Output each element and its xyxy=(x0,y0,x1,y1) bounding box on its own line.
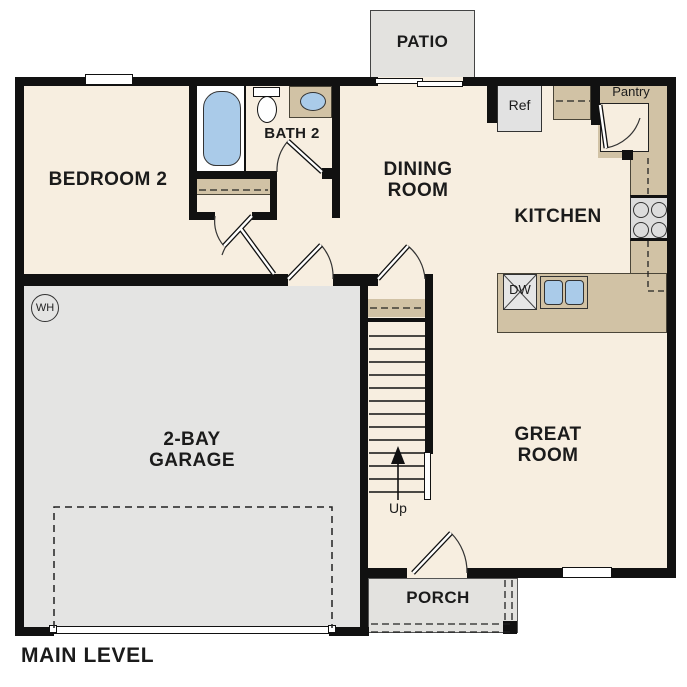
bath-sink-fixture xyxy=(300,92,326,111)
burner-icon xyxy=(633,202,649,218)
sliding-patio-door xyxy=(375,78,423,84)
stair-break-line xyxy=(368,318,425,322)
label-dw: DW xyxy=(503,283,537,298)
water-heater-symbol: WH xyxy=(31,294,59,322)
label-dining-room: DININGROOM xyxy=(370,159,466,202)
sink-basin xyxy=(565,280,584,305)
wall xyxy=(368,568,407,578)
wall xyxy=(189,77,197,218)
burner-icon xyxy=(651,202,667,218)
wall xyxy=(252,212,277,220)
wall xyxy=(333,274,378,286)
wall xyxy=(622,150,633,160)
floor-plan: WH PATIO BEDROOM 2 BATH 2 xyxy=(0,0,687,687)
wall xyxy=(189,212,215,220)
wall xyxy=(322,168,333,179)
page-title: MAIN LEVEL xyxy=(21,644,221,668)
wall xyxy=(591,83,600,125)
stair-handrail xyxy=(424,452,431,500)
label-ref: Ref xyxy=(497,98,542,114)
burner-icon xyxy=(651,222,667,238)
label-bath2: BATH 2 xyxy=(252,126,332,143)
wall xyxy=(332,77,340,218)
sink-basin xyxy=(544,280,563,305)
burner-icon xyxy=(633,222,649,238)
wall xyxy=(667,77,676,578)
stair-upper-shelf xyxy=(368,299,425,317)
bathtub-fixture xyxy=(203,91,241,166)
garage-door-post xyxy=(49,625,57,633)
label-porch: PORCH xyxy=(393,588,483,607)
wall xyxy=(612,568,676,578)
wall xyxy=(467,568,563,578)
closet-shelf xyxy=(196,179,270,195)
garage-door-post xyxy=(328,625,336,633)
wall xyxy=(15,77,24,636)
toilet-bowl xyxy=(257,96,277,123)
wall xyxy=(15,274,288,286)
label-pantry: Pantry xyxy=(602,85,660,100)
wall xyxy=(425,274,433,454)
wall xyxy=(189,171,277,179)
wall xyxy=(360,274,368,636)
label-patio: PATIO xyxy=(370,32,475,51)
garage-overhead-door xyxy=(53,626,330,634)
water-heater-label: WH xyxy=(36,302,54,314)
porch-post xyxy=(503,621,517,634)
label-kitchen: KITCHEN xyxy=(495,206,621,227)
label-great-room: GREATROOM xyxy=(500,424,596,467)
label-up: Up xyxy=(383,501,413,517)
sliding-patio-door xyxy=(417,81,463,87)
corner-cabinet xyxy=(553,83,591,120)
label-bedroom2: BEDROOM 2 xyxy=(28,169,188,190)
pantry-interior xyxy=(600,103,649,152)
window xyxy=(85,74,133,85)
wall xyxy=(487,86,497,123)
label-garage: 2-BAYGARAGE xyxy=(140,429,244,472)
window xyxy=(562,567,612,578)
